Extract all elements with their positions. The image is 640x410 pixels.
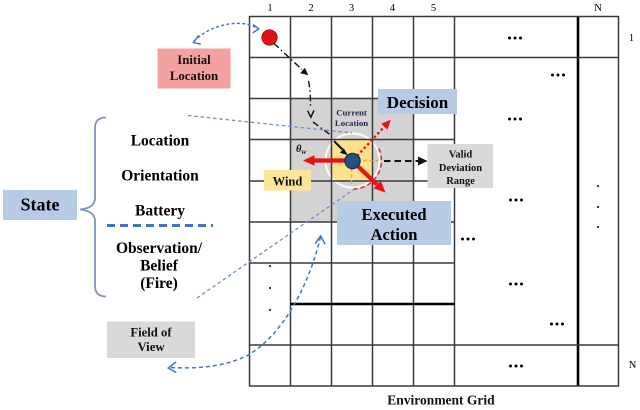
svg-text:Environment Grid: Environment Grid [387,393,495,408]
svg-text:Field of: Field of [130,326,172,340]
svg-text:1: 1 [629,33,634,44]
svg-text:Executed: Executed [361,205,426,224]
svg-text:Observation/: Observation/ [116,240,203,257]
svg-text:Wind: Wind [273,175,303,189]
svg-text:4: 4 [390,3,396,14]
svg-text:Location: Location [335,118,368,128]
svg-text:Action: Action [371,225,418,244]
svg-text:Location: Location [131,133,190,150]
svg-text:Valid: Valid [449,150,473,161]
svg-text:N: N [594,3,602,14]
svg-text:2: 2 [308,3,313,14]
svg-text:Current: Current [336,108,367,118]
svg-text:N: N [629,360,637,371]
svg-text:Battery: Battery [135,203,185,220]
svg-text:Belief: Belief [140,258,179,275]
svg-text:5: 5 [431,3,436,14]
svg-text:Deviation: Deviation [439,163,482,174]
svg-text:Decision: Decision [387,93,449,112]
svg-text:Orientation: Orientation [121,168,199,185]
svg-text:State: State [21,195,60,215]
svg-text:Initial: Initial [177,53,211,67]
svg-text:Location: Location [170,69,218,83]
svg-text:View: View [137,340,165,354]
svg-text:Range: Range [446,176,475,187]
svg-text:3: 3 [349,3,354,14]
svg-text:1: 1 [267,3,272,14]
svg-text:(Fire): (Fire) [140,275,178,292]
